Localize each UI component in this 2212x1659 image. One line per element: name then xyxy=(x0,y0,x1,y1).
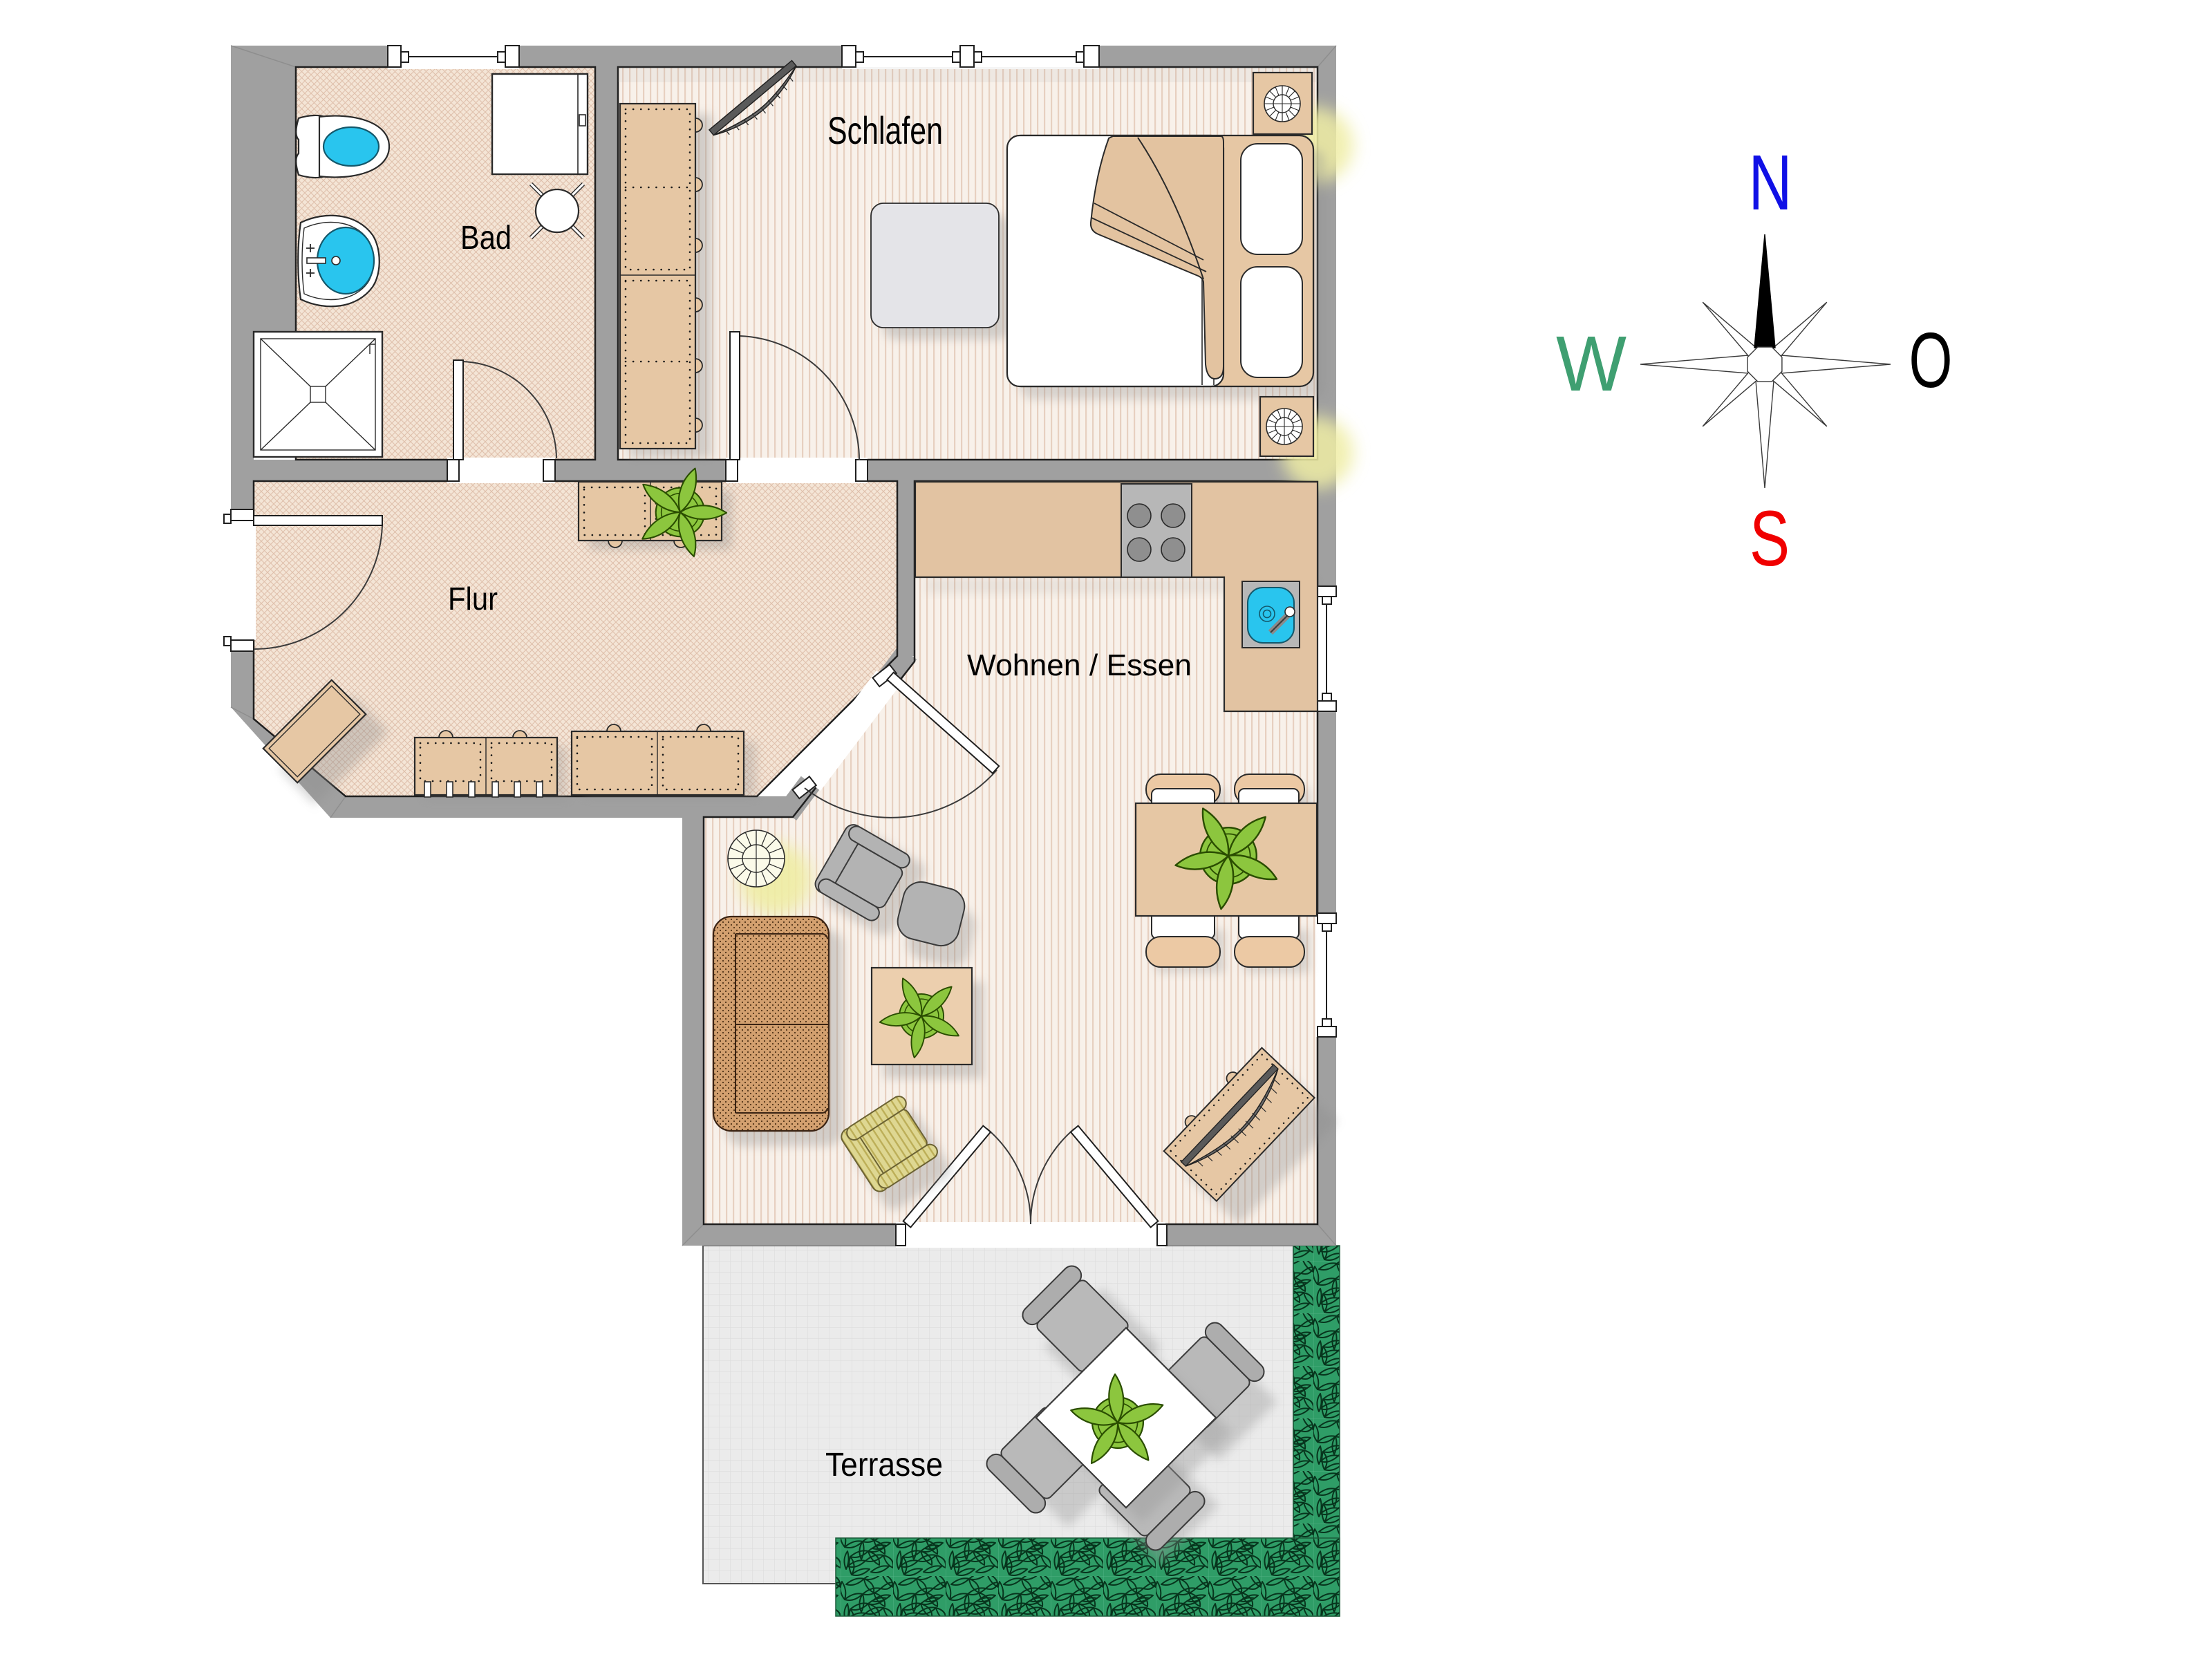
svg-text:N: N xyxy=(1749,139,1792,226)
svg-text:W: W xyxy=(1556,320,1627,407)
svg-text:O: O xyxy=(1909,317,1953,404)
svg-text:Terrasse: Terrasse xyxy=(825,1447,943,1483)
svg-text:Flur: Flur xyxy=(448,581,498,617)
svg-text:Schlafen: Schlafen xyxy=(827,109,943,152)
svg-text:S: S xyxy=(1750,495,1790,582)
svg-text:Bad: Bad xyxy=(460,220,512,256)
svg-text:Wohnen / Essen: Wohnen / Essen xyxy=(967,648,1192,682)
